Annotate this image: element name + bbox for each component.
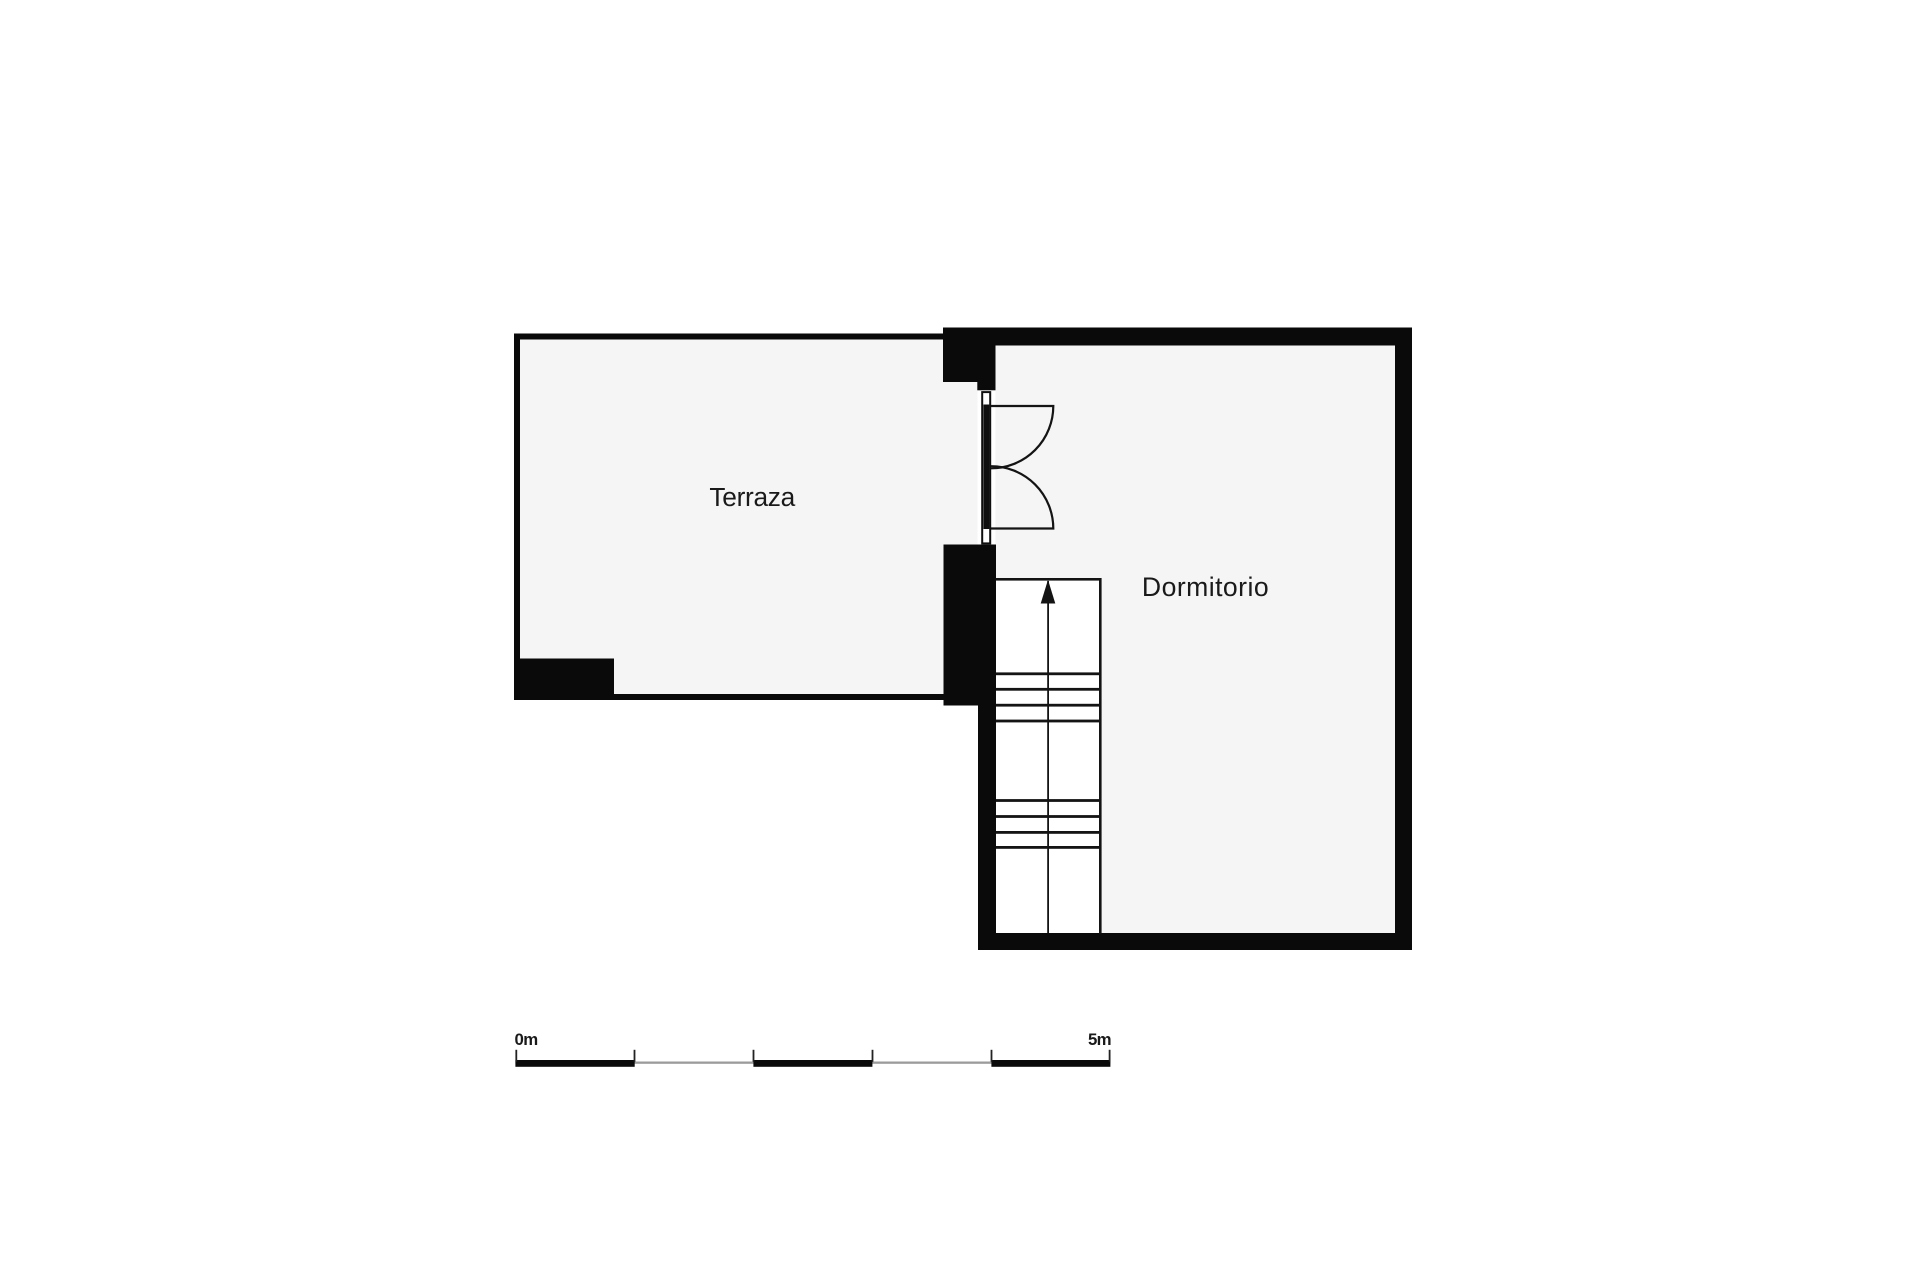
svg-text:Dormitorio: Dormitorio [1142,572,1269,602]
svg-text:0m: 0m [515,1030,538,1049]
svg-text:5m: 5m [1088,1030,1111,1049]
svg-text:Terraza: Terraza [709,482,795,512]
